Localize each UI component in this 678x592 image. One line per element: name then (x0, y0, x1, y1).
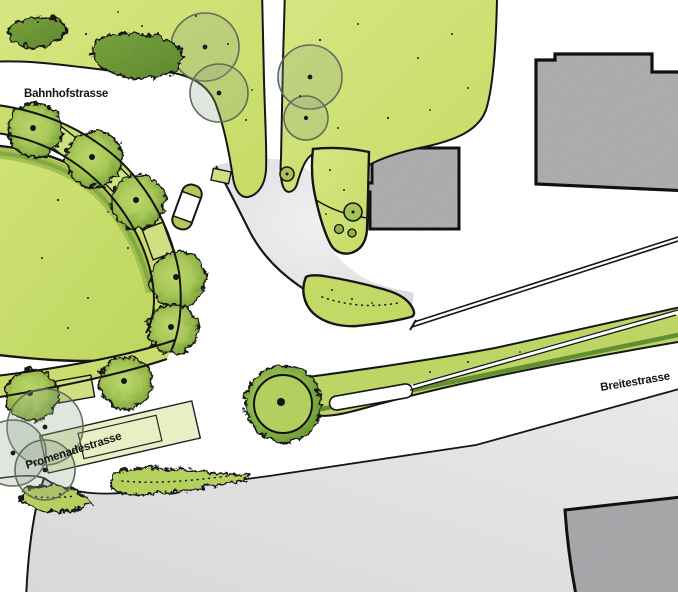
building-south-east (565, 496, 678, 592)
site-plan: Bahnhofstrasse Promenadestrasse Breitest… (0, 0, 678, 592)
building-north-east (536, 54, 678, 191)
street-label-breitestrasse: Breitestrasse (600, 371, 671, 394)
site-plan-svg: Bahnhofstrasse Promenadestrasse Breitest… (0, 0, 678, 592)
shrub-circle (348, 229, 356, 237)
big-tree (243, 364, 319, 440)
bus-bay-capsule (169, 182, 204, 232)
shrub-circle (335, 225, 344, 234)
street-label-bahnhofstrasse: Bahnhofstrasse (24, 88, 108, 100)
teardrop-island (303, 275, 414, 326)
